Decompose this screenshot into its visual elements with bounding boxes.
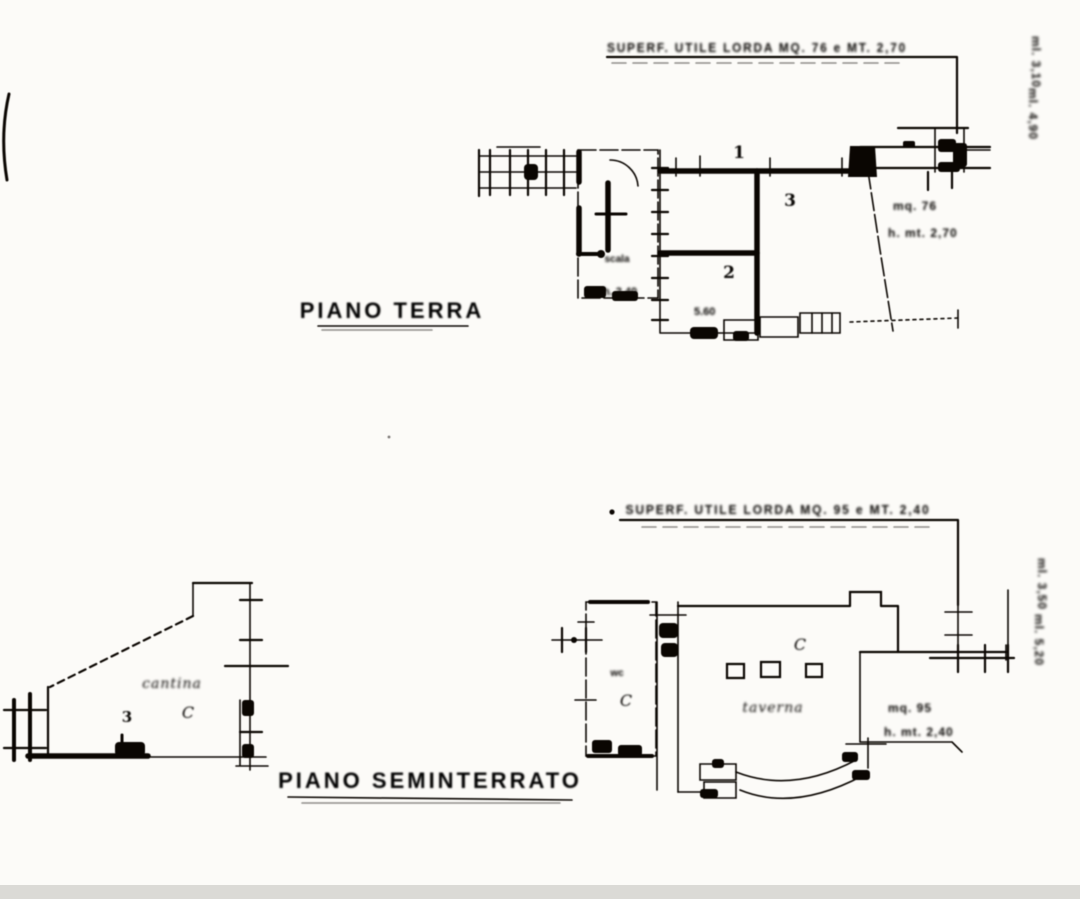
room-3-number: 3	[784, 191, 796, 211]
floor-plan-drawing: SUPERF. UTILE LORDA MQ. 76 e MT. 2,70 ml…	[0, 0, 1080, 899]
basement-right-dimension	[930, 590, 1014, 672]
ground-floor-external-stair	[479, 147, 576, 196]
basement-wc-unit: wc C	[578, 602, 656, 756]
ground-floor-dimension-note: SUPERF. UTILE LORDA MQ. 76 e MT. 2,70	[607, 40, 907, 55]
annex-steps	[4, 694, 46, 760]
annex-number: 3	[122, 708, 132, 726]
basement-dimension-line: SUPERF. UTILE LORDA MQ. 95 e MT. 2,40	[609, 502, 958, 605]
basement-side-note-2: ml. 5,20	[1032, 614, 1046, 666]
basement-title-text: PIANO SEMINTERRATO	[278, 768, 582, 793]
room-1-number: 1	[733, 143, 745, 163]
ground-floor-main-unit: 1 2 3 5.60	[652, 143, 958, 341]
ground-floor-side-note-1: ml. 3,10	[1029, 36, 1043, 88]
ground-floor-dimension-line: SUPERF. UTILE LORDA MQ. 76 e MT. 2,70	[607, 40, 957, 133]
basement-area-note-line2: h. mt. 2,40	[884, 725, 954, 739]
basement-area-note: mq. 95 h. mt. 2,40	[884, 701, 954, 739]
basement-wc-letter: C	[620, 691, 632, 710]
ground-floor-area-note-line1: mq. 76	[893, 199, 937, 213]
annex-letter: C	[182, 703, 194, 722]
ground-floor-stair-note: scala	[604, 254, 629, 265]
ground-floor-floor-note: 5.60	[694, 306, 715, 318]
scan-artifact-left-edge	[4, 94, 391, 438]
basement-side-note-1: ml. 3,50	[1035, 558, 1049, 610]
annex-right-dimension	[225, 583, 288, 770]
ground-floor-plan: SUPERF. UTILE LORDA MQ. 76 e MT. 2,70 ml…	[300, 36, 1043, 341]
basement-corridor-wall	[650, 602, 706, 792]
scan-edge-shadow	[0, 885, 1080, 899]
ground-floor-title: PIANO TERRA	[300, 298, 485, 330]
floor-plan-scan-page: SUPERF. UTILE LORDA MQ. 76 e MT. 2,70 ml…	[0, 0, 1080, 899]
ground-floor-area-note: mq. 76 h. mt. 2,70	[888, 199, 958, 240]
basement-side-notes: ml. 3,50 ml. 5,20	[1032, 558, 1049, 666]
ground-floor-side-note-2: ml. 4,90	[1026, 88, 1040, 140]
basement-title: PIANO SEMINTERRATO	[278, 768, 582, 803]
annex-word: cantina	[142, 676, 202, 692]
ground-floor-side-notes: ml. 3,10 ml. 4,90	[1026, 36, 1043, 140]
basement-bay	[700, 738, 886, 798]
ground-floor-stair-unit: scala h. 2,40	[578, 150, 658, 301]
room-2-number: 2	[723, 263, 735, 283]
basement-dimension-note: SUPERF. UTILE LORDA MQ. 95 e MT. 2,40	[626, 502, 931, 517]
ground-floor-title-text: PIANO TERRA	[300, 298, 485, 323]
basement-area-note-line1: mq. 95	[888, 701, 932, 715]
basement-wc-note: wc	[609, 668, 624, 679]
ground-floor-area-note-line2: h. mt. 2,70	[888, 226, 958, 240]
annex-plan: cantina 3 C	[4, 583, 288, 770]
basement-plan: SUPERF. UTILE LORDA MQ. 95 e MT. 2,40 ml…	[278, 502, 1049, 803]
basement-main-room: C taverna	[678, 592, 1006, 752]
basement-left-dimension	[552, 628, 602, 700]
basement-room-letter: C	[794, 635, 806, 654]
basement-room-word: taverna	[742, 700, 803, 716]
ground-floor-top-right-detail	[860, 128, 990, 190]
